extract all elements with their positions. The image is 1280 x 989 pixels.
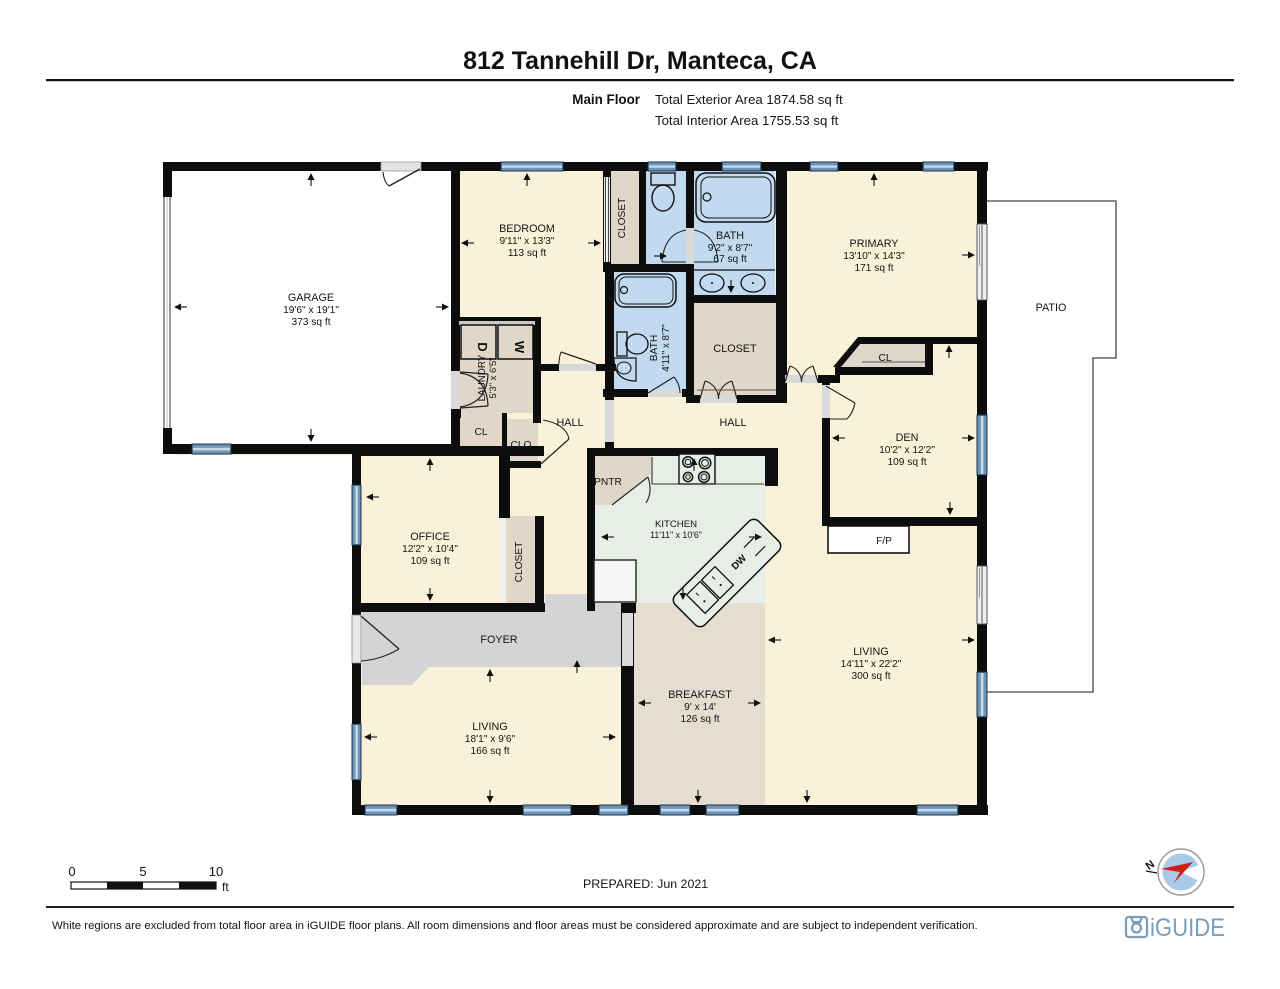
svg-text:9' x 14': 9' x 14' <box>684 702 716 713</box>
svg-text:ft: ft <box>222 880 229 894</box>
svg-text:KITCHEN: KITCHEN <box>655 519 697 530</box>
svg-text:HALL: HALL <box>556 417 583 429</box>
svg-text:109 sq ft: 109 sq ft <box>410 556 449 567</box>
svg-text:PREPARED: Jun 2021: PREPARED: Jun 2021 <box>583 877 708 891</box>
svg-text:CL: CL <box>878 353 891 364</box>
svg-text:PATIO: PATIO <box>1036 302 1067 314</box>
svg-text:CLOSET: CLOSET <box>617 198 628 239</box>
svg-text:Total Exterior Area 1874.58 sq: Total Exterior Area 1874.58 sq ft <box>655 92 843 107</box>
svg-text:67 sq ft: 67 sq ft <box>713 254 747 265</box>
svg-text:Total Interior Area 1755.53 sq: Total Interior Area 1755.53 sq ft <box>655 113 839 128</box>
svg-text:FOYER: FOYER <box>480 634 517 646</box>
svg-text:14'11" x 22'2": 14'11" x 22'2" <box>841 659 902 670</box>
svg-text:CLO: CLO <box>511 440 532 451</box>
svg-text:White regions are excluded fro: White regions are excluded from total fl… <box>52 920 978 932</box>
svg-text:166 sq ft: 166 sq ft <box>470 746 509 757</box>
svg-text:0: 0 <box>68 864 75 879</box>
svg-text:19'6" x 19'1": 19'6" x 19'1" <box>283 305 339 316</box>
svg-text:11'11" x 10'6": 11'11" x 10'6" <box>650 530 702 540</box>
svg-text:F/P: F/P <box>876 536 892 547</box>
svg-text:OFFICE: OFFICE <box>410 531 450 543</box>
svg-text:D: D <box>475 342 490 351</box>
svg-text:BEDROOM: BEDROOM <box>499 223 555 235</box>
svg-text:LIVING: LIVING <box>472 721 507 733</box>
svg-text:Main Floor: Main Floor <box>572 92 640 107</box>
svg-text:126 sq ft: 126 sq ft <box>680 714 719 725</box>
svg-text:PRIMARY: PRIMARY <box>850 238 899 250</box>
svg-text:373 sq ft: 373 sq ft <box>291 317 330 328</box>
svg-text:CL: CL <box>474 427 487 438</box>
svg-text:CLOSET: CLOSET <box>514 542 525 583</box>
svg-text:109 sq ft: 109 sq ft <box>887 457 926 468</box>
svg-text:13'10" x 14'3": 13'10" x 14'3" <box>843 251 905 262</box>
svg-text:10: 10 <box>209 864 223 879</box>
svg-text:113 sq ft: 113 sq ft <box>508 248 546 259</box>
svg-text:HALL: HALL <box>719 417 746 429</box>
svg-text:CLOSET: CLOSET <box>713 343 757 355</box>
svg-text:LIVING: LIVING <box>853 646 888 658</box>
svg-text:812 Tannehill Dr, Manteca, CA: 812 Tannehill Dr, Manteca, CA <box>463 47 817 75</box>
svg-text:300 sq ft: 300 sq ft <box>851 671 890 682</box>
svg-text:BATH: BATH <box>649 335 660 361</box>
svg-text:PNTR: PNTR <box>594 477 622 488</box>
svg-text:9'11" x 13'3": 9'11" x 13'3" <box>499 236 554 247</box>
svg-text:GARAGE: GARAGE <box>288 292 334 304</box>
svg-text:9'2" x 8'7": 9'2" x 8'7" <box>708 243 753 254</box>
svg-text:10'2" x 12'2": 10'2" x 12'2" <box>879 445 935 456</box>
svg-text:W: W <box>512 341 527 354</box>
svg-text:iGUIDE: iGUIDE <box>1150 914 1225 942</box>
svg-text:5: 5 <box>139 864 146 879</box>
svg-text:18'1" x 9'6": 18'1" x 9'6" <box>465 734 516 745</box>
svg-text:4'11" x 8'7": 4'11" x 8'7" <box>661 324 672 372</box>
svg-text:5'3" x 6'5": 5'3" x 6'5" <box>487 358 498 399</box>
svg-text:171 sq ft: 171 sq ft <box>854 263 893 274</box>
svg-text:12'2" x 10'4": 12'2" x 10'4" <box>402 544 458 555</box>
svg-text:BATH: BATH <box>716 230 744 242</box>
svg-text:BREAKFAST: BREAKFAST <box>668 689 732 701</box>
svg-text:DEN: DEN <box>896 432 919 444</box>
